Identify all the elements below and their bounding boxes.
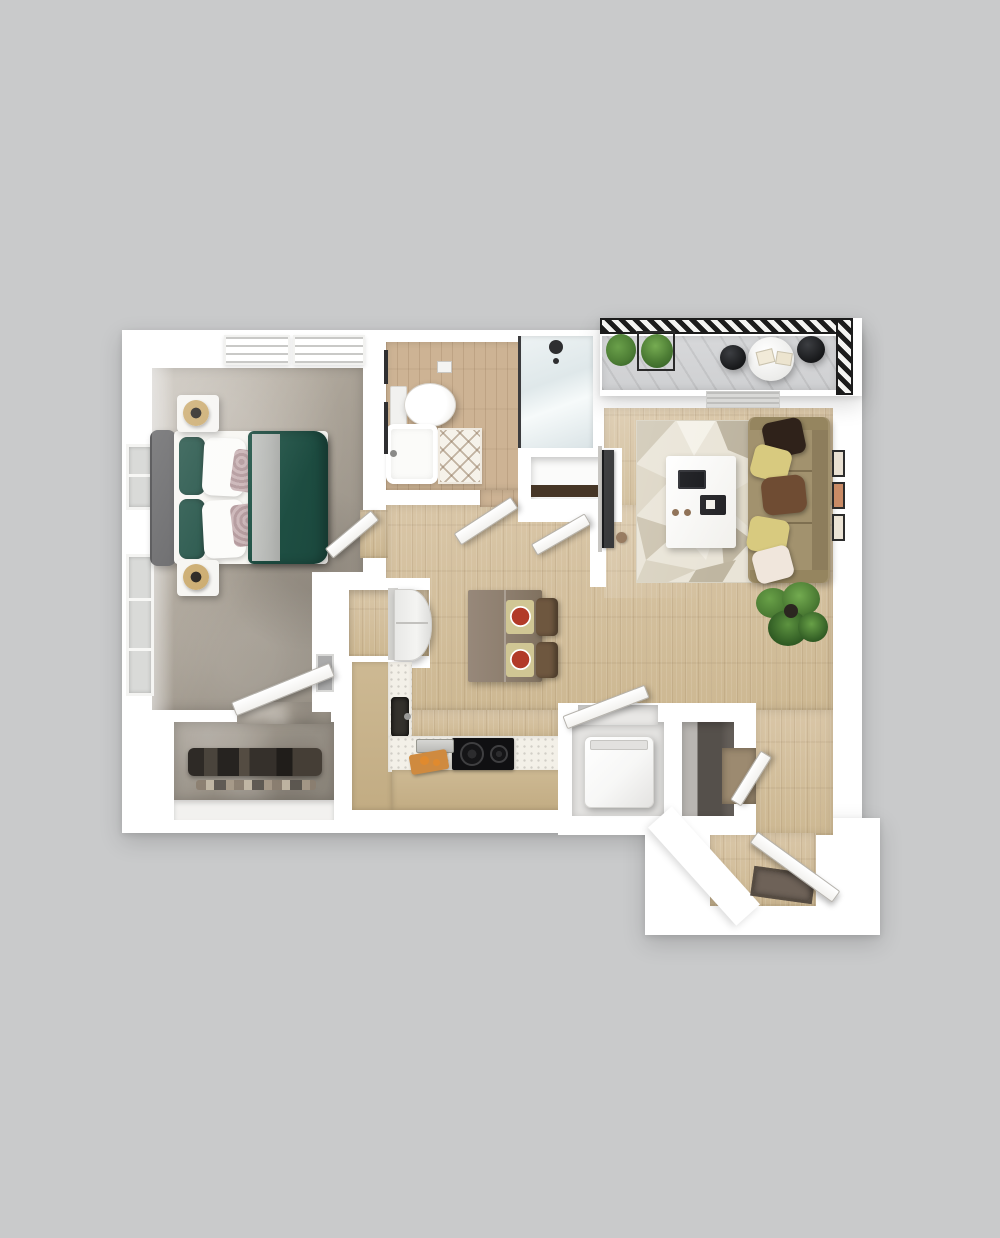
toilet-bowl — [404, 383, 456, 427]
window-mullion-3 — [128, 648, 152, 651]
bedroom-ceiling-vent-a — [224, 335, 290, 365]
side-stool — [616, 532, 627, 543]
balcony-plant-small — [606, 334, 636, 366]
floor-plan-canvas — [0, 0, 1000, 1238]
shower-head-icon — [549, 340, 563, 354]
hanging-clothes — [188, 748, 322, 776]
tv — [602, 450, 614, 548]
sofa-back — [812, 421, 828, 579]
living-plant-pot — [784, 604, 798, 618]
living-ceiling-vent — [706, 391, 780, 408]
washer-control-panel — [590, 740, 648, 750]
corridor-floor — [755, 710, 833, 835]
wall-frame-1 — [832, 450, 845, 477]
kitchen-floor-strip — [408, 710, 558, 738]
coffee-table-tablet — [678, 470, 706, 489]
towel-bar-lower — [384, 402, 388, 454]
cooktop-burner-small — [490, 745, 508, 763]
balcony-table-book-2 — [775, 351, 793, 366]
tub-faucet — [390, 450, 397, 457]
kitchen-cabinet-left — [352, 662, 392, 810]
wall-frame-3 — [832, 514, 845, 541]
lamp-top-icon — [183, 400, 209, 426]
cooktop-burner-large — [460, 742, 484, 766]
bed-throw-gray — [252, 434, 280, 561]
plate-bottom — [510, 649, 531, 670]
plate-top — [510, 606, 531, 627]
dining-chair-top — [536, 598, 558, 636]
towel-bar-upper — [384, 350, 388, 384]
living-plant-leaf-4 — [798, 612, 828, 642]
wall-frame-2 — [832, 482, 845, 509]
sofa-pillow-brown — [760, 474, 808, 516]
shower-frame — [518, 336, 521, 452]
bedroom-window-lower — [126, 554, 154, 696]
balcony-chair-right — [797, 336, 825, 363]
bath-mat — [438, 428, 482, 484]
kitchen-cabinet-bottom — [392, 770, 568, 810]
balcony-chair-left — [720, 345, 746, 370]
window-mullion-2 — [128, 598, 152, 601]
toilet-paper-holder — [437, 361, 452, 373]
shoe-row — [196, 780, 316, 790]
tray-card — [706, 500, 715, 509]
balcony-plant-large — [641, 334, 673, 368]
balcony-railing-right — [836, 318, 853, 395]
table-knob-2 — [684, 509, 691, 516]
lamp-bottom-icon — [183, 564, 209, 590]
table-knob-1 — [672, 509, 679, 516]
sink-faucet-icon — [404, 713, 411, 720]
fridge-door-seam — [396, 622, 428, 624]
carrot-slices — [420, 756, 429, 765]
bedroom-ceiling-vent-b — [293, 335, 365, 365]
window-mullion-1 — [128, 474, 152, 477]
bed-headboard — [150, 430, 176, 566]
closet-shelf-band — [174, 800, 334, 820]
dining-chair-bottom — [536, 642, 558, 678]
